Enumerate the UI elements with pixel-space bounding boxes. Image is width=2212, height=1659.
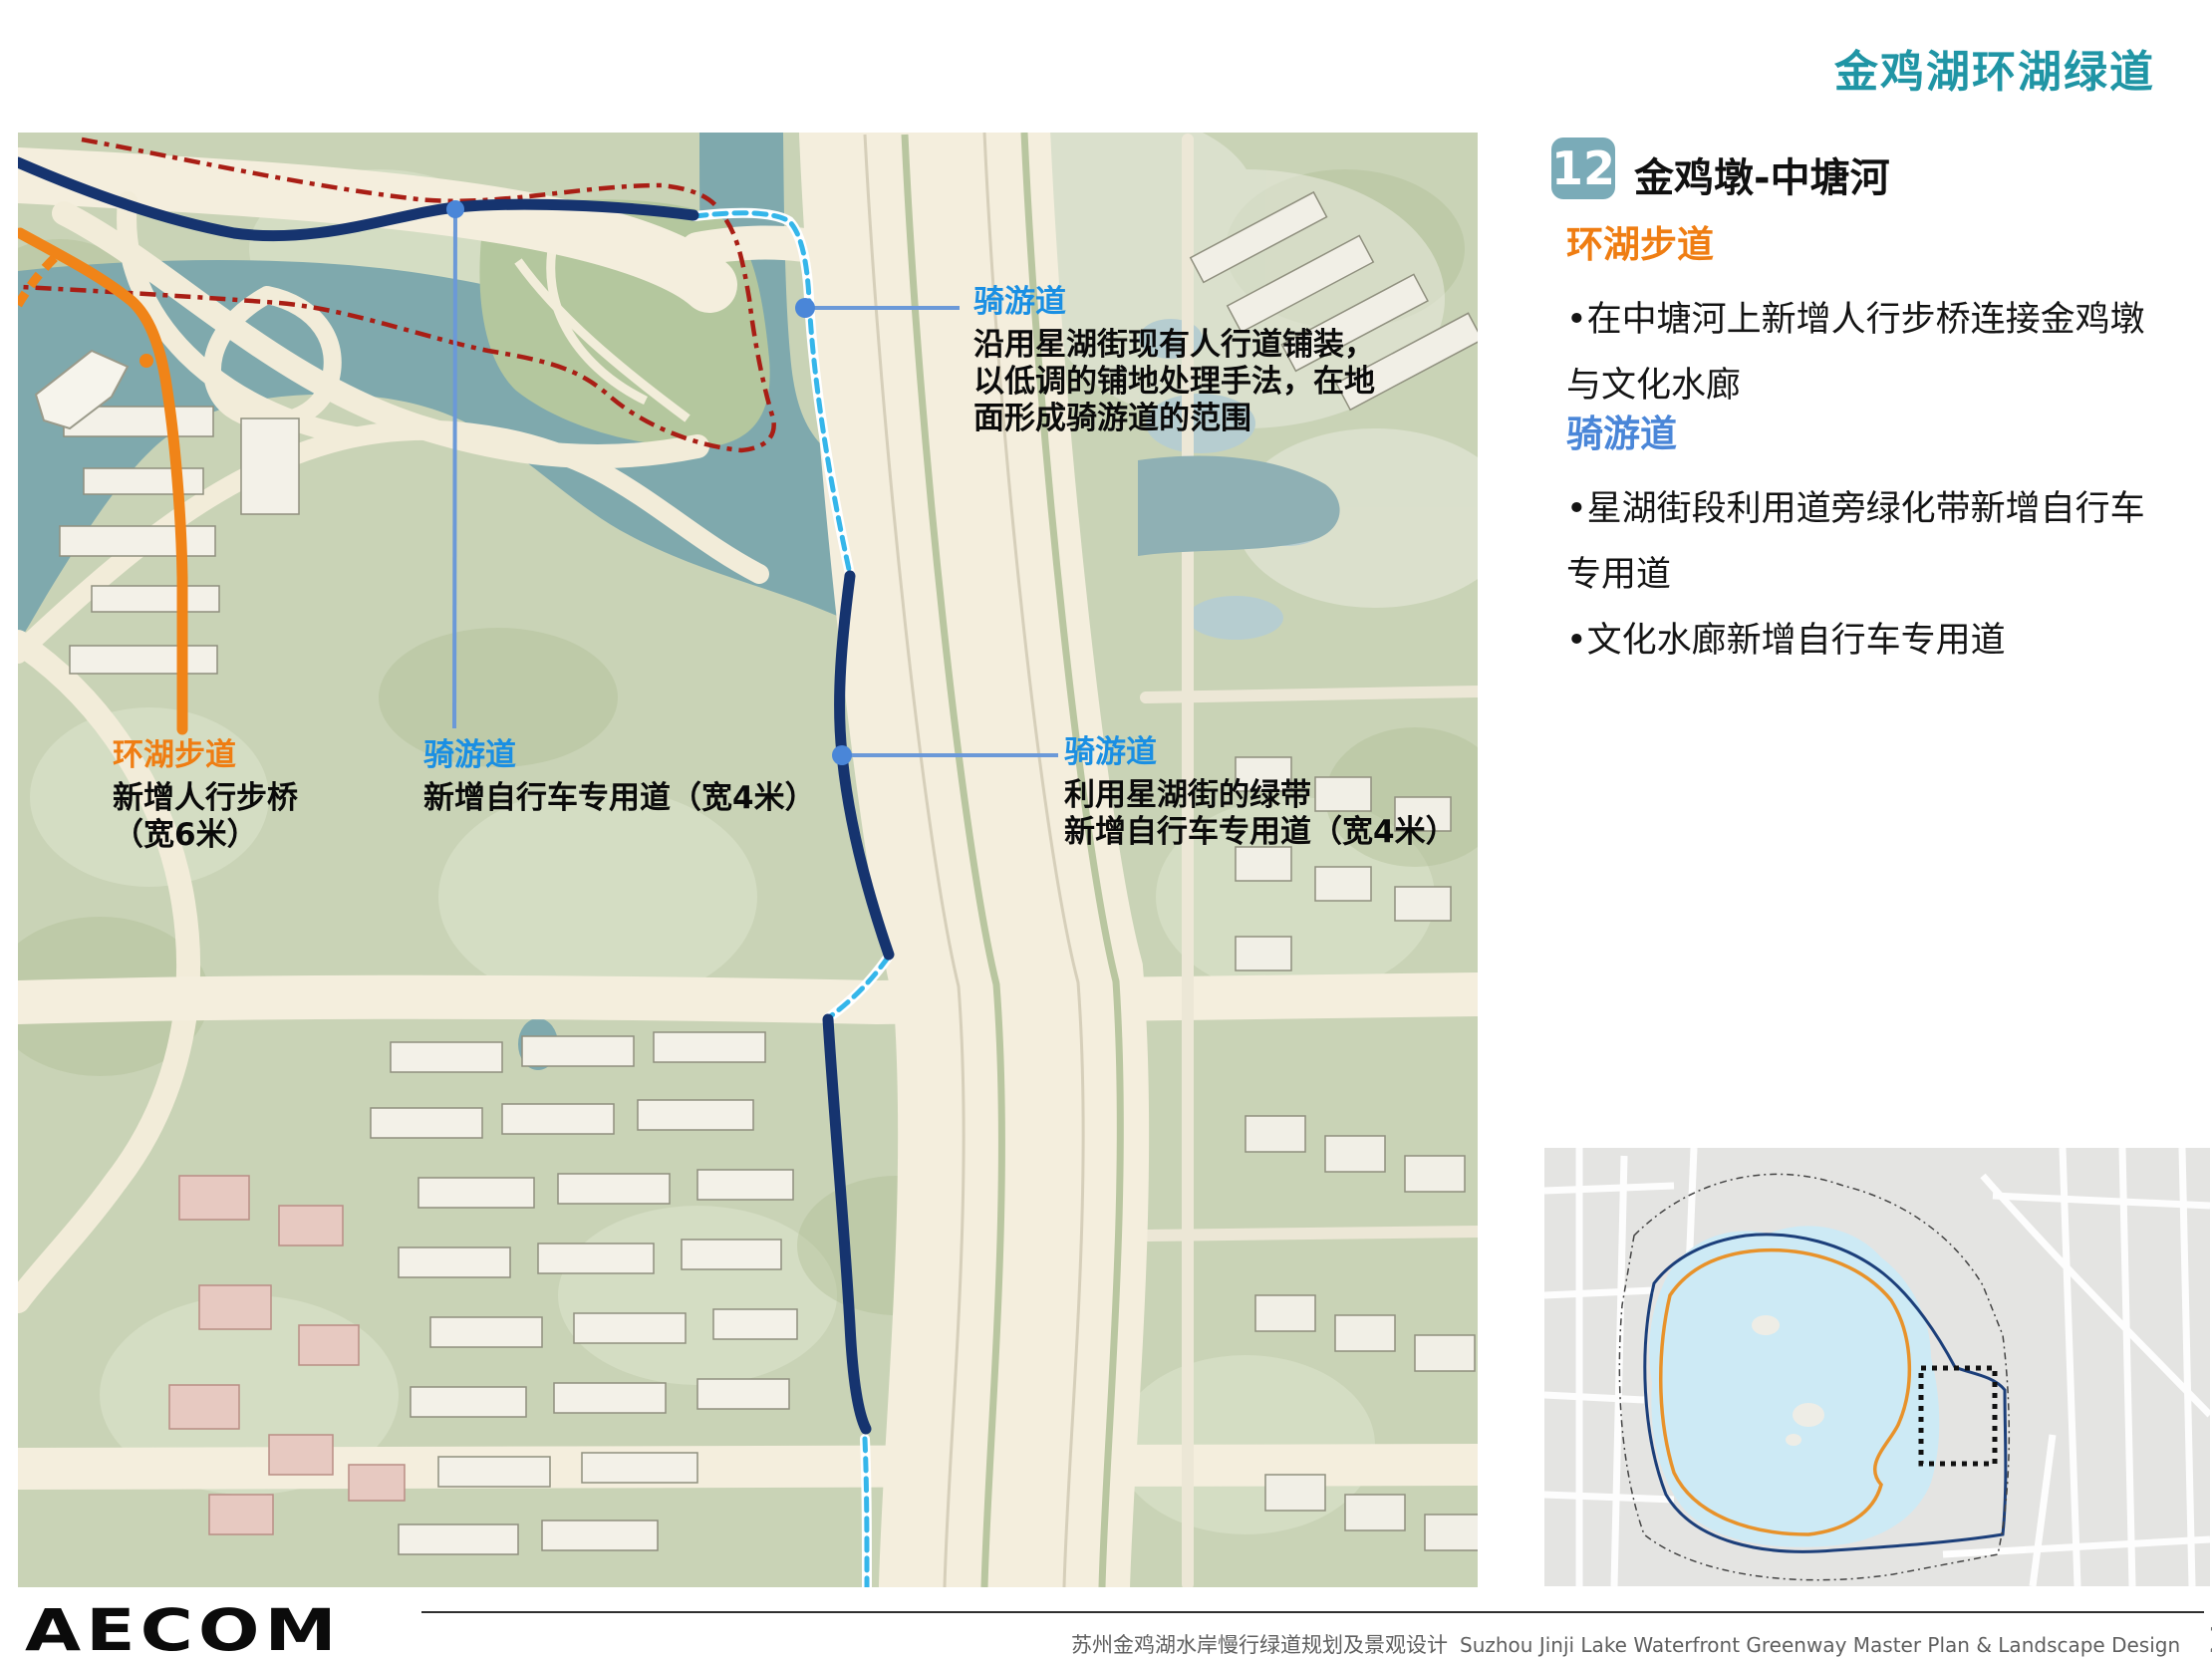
callout-line: 新增自行车专用道（宽4米） (1064, 814, 1457, 850)
callout-line: 以低调的铺地处理手法，在地 (973, 364, 1375, 400)
callout-line: （宽6米） (113, 817, 258, 853)
footer-text: 苏州金鸡湖水岸慢行绿道规划及景观设计 Suzhou Jinji Lake Wat… (1071, 1620, 2212, 1659)
callout-walkway-bridge: 环湖步道 新增人行步桥 （宽6米） (113, 737, 298, 854)
slide-page: 金鸡湖环湖绿道 (0, 0, 2212, 1659)
cycleway-heading: 骑游道 (1566, 413, 2156, 456)
callout-cycleway-north: 骑游道 沿用星湖街现有人行道铺装， 以低调的铺地处理手法，在地 面形成骑游道的范… (973, 284, 1375, 437)
callout-line: 利用星湖街的绿带 (1064, 777, 1311, 813)
callout-title: 骑游道 (423, 737, 816, 774)
section-body: 环湖步道 •在中塘河上新增人行步桥连接金鸡墩与文化水廊 骑游道 •星湖街段利用道… (1566, 223, 2156, 674)
callout-cycleway-east: 骑游道 利用星湖街的绿带 新增自行车专用道（宽4米） (1064, 734, 1457, 851)
page-title: 金鸡湖环湖绿道 (1834, 36, 2155, 100)
location-minimap (1544, 1148, 2210, 1586)
footer-project-zh: 苏州金鸡湖水岸慢行绿道规划及景观设计 (1071, 1629, 1448, 1659)
minimap-graphic (1544, 1148, 2210, 1586)
aecom-logo: AECOM (25, 1596, 342, 1659)
walkway-heading: 环湖步道 (1566, 223, 2156, 267)
callout-line: 沿用星湖街现有人行道铺装， (973, 327, 1375, 363)
orange-route-node (139, 354, 153, 368)
cycleway-bullet-1: •星湖街段利用道旁绿化带新增自行车专用道 (1566, 476, 2156, 608)
callout-line: 面形成骑游道的范围 (973, 401, 1251, 436)
walkway-bullet: •在中塘河上新增人行步桥连接金鸡墩与文化水廊 (1566, 287, 2156, 418)
callout-line: 新增自行车专用道（宽4米） (423, 780, 816, 816)
callout-line: 新增人行步桥 (113, 780, 298, 816)
cycleway-bullet-2: •文化水廊新增自行车专用道 (1566, 608, 2156, 674)
callout-title: 骑游道 (1064, 734, 1457, 771)
footer-project-en: Suzhou Jinji Lake Waterfront Greenway Ma… (1460, 1633, 2180, 1657)
section-title: 金鸡墩-中塘河 (1634, 145, 1890, 203)
callout-cycleway-center: 骑游道 新增自行车专用道（宽4米） (423, 737, 816, 817)
section-number-badge: 12 (1551, 138, 1615, 199)
footer-divider (421, 1611, 2204, 1613)
page-number: 25 (2208, 1620, 2212, 1659)
callout-title: 环湖步道 (113, 737, 298, 774)
callout-title: 骑游道 (973, 284, 1375, 321)
